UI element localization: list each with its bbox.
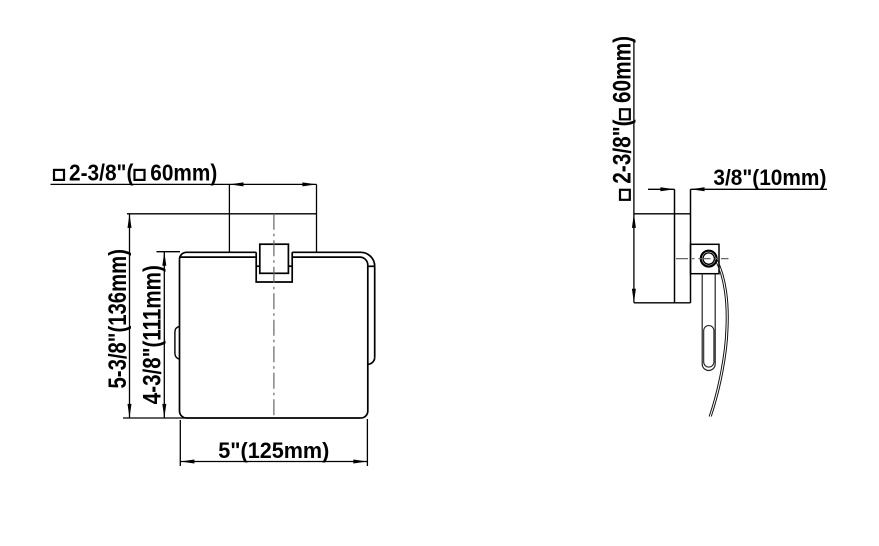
svg-text:4-3/8"(111mm): 4-3/8"(111mm) <box>138 265 166 404</box>
svg-text:60mm): 60mm) <box>608 36 636 103</box>
svg-text:3/8"(10mm): 3/8"(10mm) <box>713 165 826 190</box>
svg-text:60mm): 60mm) <box>150 160 217 186</box>
svg-text:2-3/8"(: 2-3/8"( <box>69 160 134 186</box>
svg-text:5"(125mm): 5"(125mm) <box>218 438 329 463</box>
svg-text:5-3/8"(136mm): 5-3/8"(136mm) <box>104 249 132 389</box>
svg-text:2-3/8"(: 2-3/8"( <box>608 119 636 184</box>
